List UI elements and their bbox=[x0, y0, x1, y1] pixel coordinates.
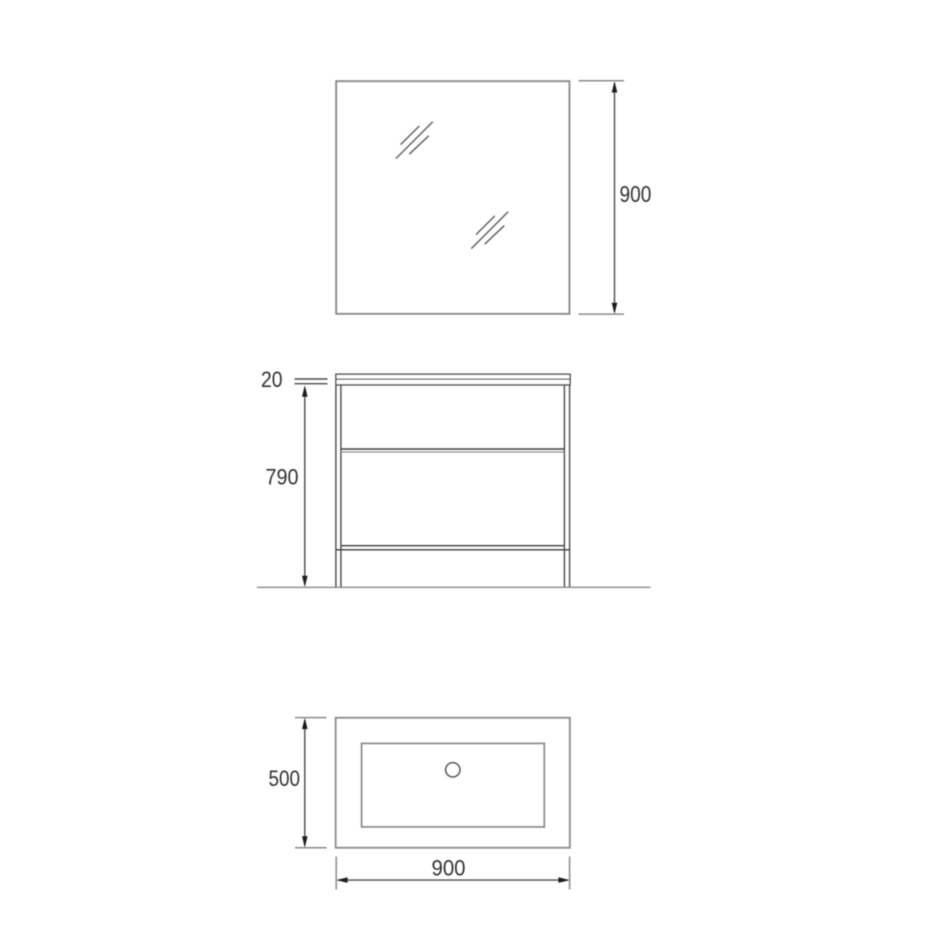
svg-text:900: 900 bbox=[432, 856, 466, 881]
svg-text:900: 900 bbox=[620, 181, 652, 207]
svg-text:20: 20 bbox=[261, 367, 283, 392]
svg-text:790: 790 bbox=[266, 465, 299, 490]
svg-text:500: 500 bbox=[269, 766, 301, 791]
